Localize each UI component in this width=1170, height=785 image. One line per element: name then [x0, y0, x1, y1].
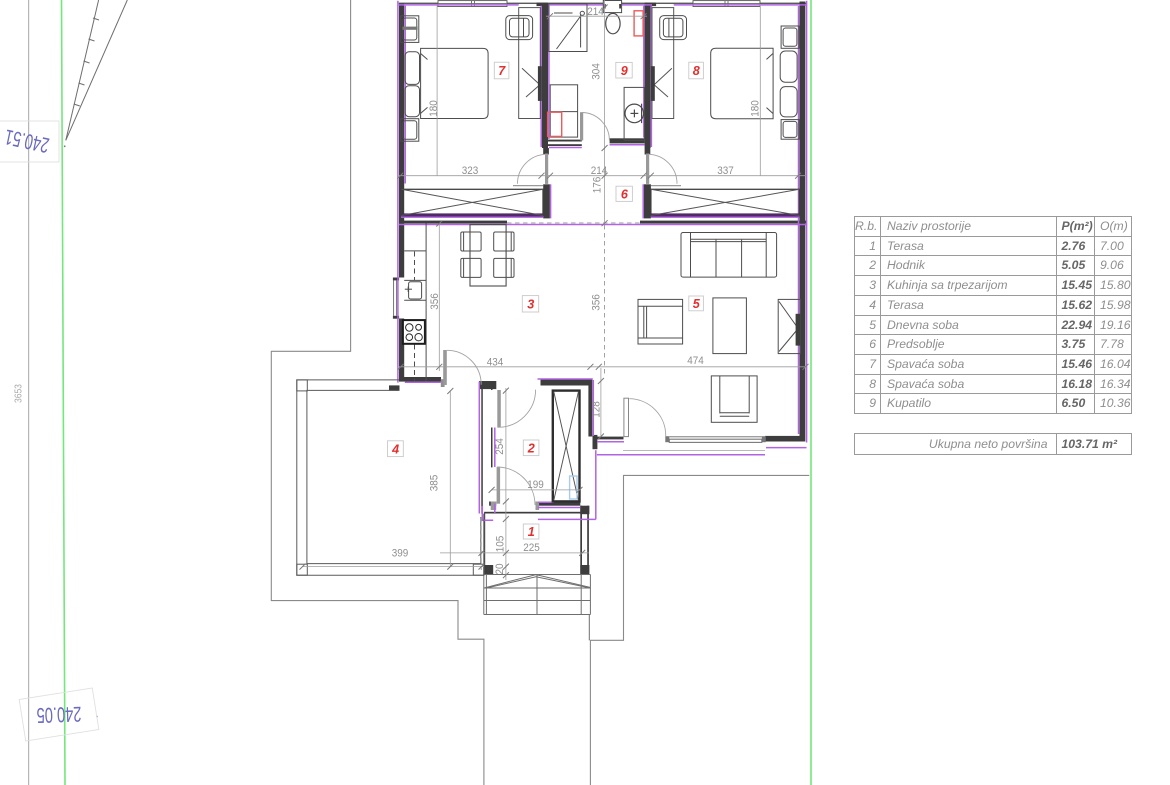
svg-text:474: 474 [687, 354, 704, 367]
svg-text:214: 214 [591, 164, 608, 177]
svg-text:6: 6 [621, 187, 629, 201]
svg-text:2: 2 [527, 441, 535, 455]
svg-text:1: 1 [528, 525, 535, 539]
svg-text:180: 180 [749, 100, 762, 117]
svg-text:3653: 3653 [13, 384, 24, 403]
svg-text:356: 356 [590, 294, 603, 311]
svg-text:356: 356 [428, 293, 441, 310]
svg-text:128: 128 [590, 401, 603, 418]
svg-text:214: 214 [587, 5, 604, 18]
svg-text:176: 176 [591, 177, 604, 194]
svg-text:3: 3 [527, 297, 534, 311]
svg-text:323: 323 [462, 164, 479, 177]
svg-text:20: 20 [493, 563, 506, 574]
svg-text:199: 199 [527, 478, 544, 491]
svg-text:4: 4 [391, 442, 399, 456]
svg-text:5: 5 [693, 297, 701, 311]
svg-text:399: 399 [392, 547, 409, 560]
svg-text:434: 434 [487, 356, 504, 369]
svg-text:385: 385 [428, 475, 441, 492]
svg-text:9: 9 [621, 64, 628, 78]
svg-text:254: 254 [493, 438, 506, 455]
svg-text:240.51: 240.51 [2, 125, 51, 158]
svg-text:337: 337 [717, 164, 734, 177]
svg-text:225: 225 [523, 541, 540, 554]
svg-text:7: 7 [498, 64, 506, 78]
svg-text:105: 105 [494, 536, 507, 553]
svg-text:304: 304 [590, 63, 603, 80]
svg-text:240.05: 240.05 [36, 702, 82, 728]
svg-text:180: 180 [427, 100, 440, 117]
svg-text:8: 8 [693, 64, 700, 78]
